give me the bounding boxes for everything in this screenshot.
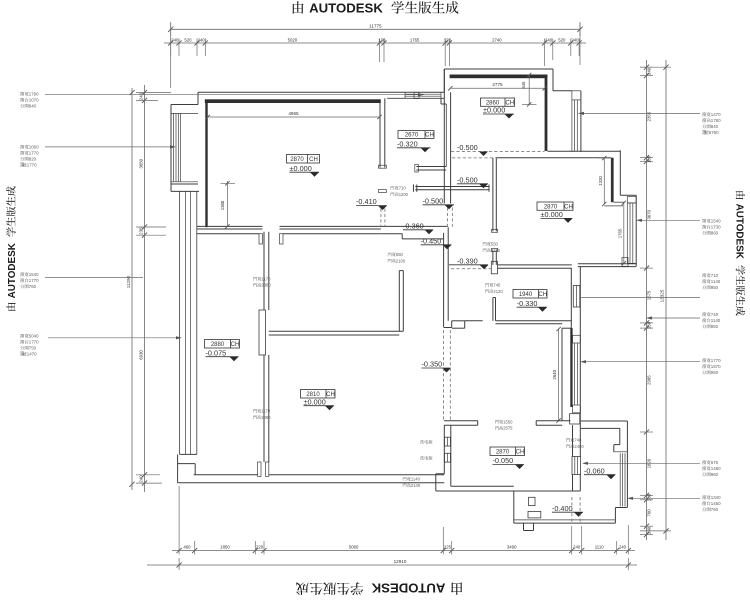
svg-text:820: 820 [29,157,37,162]
svg-text:AUTODESK: AUTODESK [734,204,745,260]
svg-text:5060: 5060 [349,545,359,550]
svg-text:1790: 1790 [29,92,39,97]
svg-text:1470: 1470 [27,352,37,357]
svg-text:1770: 1770 [711,358,721,363]
svg-text:760: 760 [711,507,719,512]
svg-text:1110: 1110 [595,545,605,550]
svg-text:1170: 1170 [261,276,271,281]
svg-text:240: 240 [139,475,144,483]
svg-text:CH: CH [538,292,547,298]
svg-text:CH: CH [425,133,434,139]
svg-text:13325: 13325 [660,289,665,302]
svg-text:240: 240 [171,37,179,42]
svg-text:2140: 2140 [411,483,421,488]
svg-text:CH: CH [231,342,240,348]
svg-text:CH: CH [326,392,335,398]
svg-text:2150: 2150 [491,248,501,253]
svg-text:AUTODESK: AUTODESK [371,581,445,596]
svg-text:520: 520 [558,37,566,42]
svg-text:2985: 2985 [647,375,652,385]
svg-text:-0.060: -0.060 [584,466,605,475]
svg-text:240: 240 [573,545,581,550]
svg-text:1060: 1060 [29,145,39,150]
svg-text:1770: 1770 [29,278,39,283]
svg-text:1575: 1575 [647,290,652,300]
svg-text:240: 240 [139,92,144,100]
svg-text:1470: 1470 [711,112,721,117]
svg-text:550: 550 [396,252,404,257]
svg-text:1070: 1070 [29,98,39,103]
svg-text:-0.500: -0.500 [423,196,444,205]
svg-text:2380: 2380 [261,283,271,288]
svg-text:2670: 2670 [405,133,419,139]
svg-text:240: 240 [545,37,553,42]
svg-text:2870: 2870 [496,449,510,455]
svg-text:1730: 1730 [711,225,721,230]
svg-text:840: 840 [29,104,37,109]
svg-text:5040: 5040 [29,334,39,339]
svg-text:460: 460 [183,545,191,550]
svg-text:1770: 1770 [27,163,37,168]
svg-text:225: 225 [444,545,452,550]
svg-text:±0.000: ±0.000 [541,210,563,219]
svg-text:550: 550 [491,242,499,247]
svg-text:240: 240 [647,526,652,534]
svg-text:760: 760 [29,284,37,289]
svg-text:2880: 2880 [211,342,225,348]
svg-text:5760: 5760 [709,130,719,135]
svg-text:1540: 1540 [29,272,39,277]
svg-text:1940: 1940 [519,292,533,298]
svg-text:-0.075: -0.075 [206,348,227,357]
svg-text:-0.500: -0.500 [457,175,478,184]
svg-text:-0.390: -0.390 [457,256,478,265]
svg-text:240: 240 [647,67,652,75]
svg-text:±0.000: ±0.000 [483,106,505,115]
svg-text:1765: 1765 [617,228,622,238]
svg-text:1765: 1765 [410,37,420,42]
svg-text:3070: 3070 [647,209,652,219]
svg-text:11775: 11775 [369,24,382,29]
svg-text:CH: CH [505,101,514,107]
svg-text:240: 240 [619,545,627,550]
svg-text:710: 710 [711,273,719,278]
svg-text:1570: 1570 [711,364,721,369]
svg-text:CH: CH [309,157,318,163]
svg-text:±0.000: ±0.000 [304,397,326,406]
svg-text:235: 235 [139,227,144,235]
svg-text:CH: CH [516,449,525,455]
svg-text:-0.410: -0.410 [356,197,377,206]
svg-text:860: 860 [711,231,719,236]
svg-text:150: 150 [647,321,652,329]
svg-text:1140: 1140 [411,477,421,482]
svg-text:-0.500: -0.500 [457,143,478,152]
svg-text:AUTODESK: AUTODESK [309,1,383,16]
svg-text:-0.320: -0.320 [397,139,418,148]
svg-text:1850: 1850 [220,545,230,550]
svg-text:2740: 2740 [492,37,502,42]
svg-text:950: 950 [711,370,719,375]
svg-text:105: 105 [647,155,652,163]
svg-text:2400: 2400 [574,444,584,449]
svg-text:130: 130 [647,493,652,501]
svg-text:240: 240 [571,37,579,42]
svg-text:1480: 1480 [711,466,721,471]
svg-text:2100: 2100 [396,258,406,263]
svg-text:1140: 1140 [711,279,721,284]
svg-text:12910: 12910 [394,559,407,564]
svg-text:1140: 1140 [711,318,721,323]
svg-text:-0.360: -0.360 [403,221,424,230]
svg-text:-0.330: -0.330 [517,299,538,308]
svg-text:1380: 1380 [220,200,225,210]
svg-text:740: 740 [574,438,582,443]
svg-text:675: 675 [711,460,719,465]
svg-text:1770: 1770 [29,151,39,156]
svg-text:950: 950 [711,285,719,290]
svg-text:750: 750 [29,346,37,351]
svg-text:3650: 3650 [139,158,144,168]
svg-text:845: 845 [521,81,526,89]
svg-text:220: 220 [256,545,264,550]
svg-text:1780: 1780 [711,118,721,123]
svg-text:710: 710 [399,186,407,191]
svg-text:960: 960 [711,472,719,477]
svg-text:1320: 1320 [598,176,603,186]
svg-text:520: 520 [184,37,192,42]
svg-text:6930: 6930 [139,350,144,360]
svg-text:1550: 1550 [503,419,513,424]
svg-text:-0.450: -0.450 [421,236,442,245]
svg-text:±0.000: ±0.000 [290,164,312,173]
svg-text:2870: 2870 [290,157,304,163]
svg-text:-0.400: -0.400 [552,504,573,513]
svg-text:CH: CH [564,204,573,210]
svg-text:1770: 1770 [29,340,39,345]
svg-text:2380: 2380 [261,415,271,420]
svg-text:1540: 1540 [711,219,721,224]
svg-text:2640: 2640 [552,369,557,379]
svg-text:1170: 1170 [261,409,271,414]
svg-text:3490: 3490 [507,545,517,550]
svg-text:120: 120 [444,37,452,42]
svg-text:2775: 2775 [492,82,503,87]
svg-text:950: 950 [711,324,719,329]
svg-text:740: 740 [493,283,501,288]
svg-text:1200: 1200 [399,192,409,197]
svg-text:1340: 1340 [711,495,721,500]
svg-text:1450: 1450 [711,501,721,506]
svg-text:2355: 2355 [647,111,652,121]
svg-text:840: 840 [711,124,719,129]
svg-text:4965: 4965 [288,111,299,116]
svg-text:740: 740 [711,312,719,317]
svg-text:-0.350: -0.350 [422,360,443,369]
svg-text:130: 130 [378,37,386,42]
svg-text:2575: 2575 [503,426,513,431]
svg-text:2120: 2120 [493,289,503,294]
svg-text:760: 760 [647,509,652,517]
svg-text:AUTODESK: AUTODESK [7,242,18,298]
svg-text:-0.050: -0.050 [493,456,514,465]
svg-text:240: 240 [198,37,206,42]
svg-text:5020: 5020 [288,37,298,42]
